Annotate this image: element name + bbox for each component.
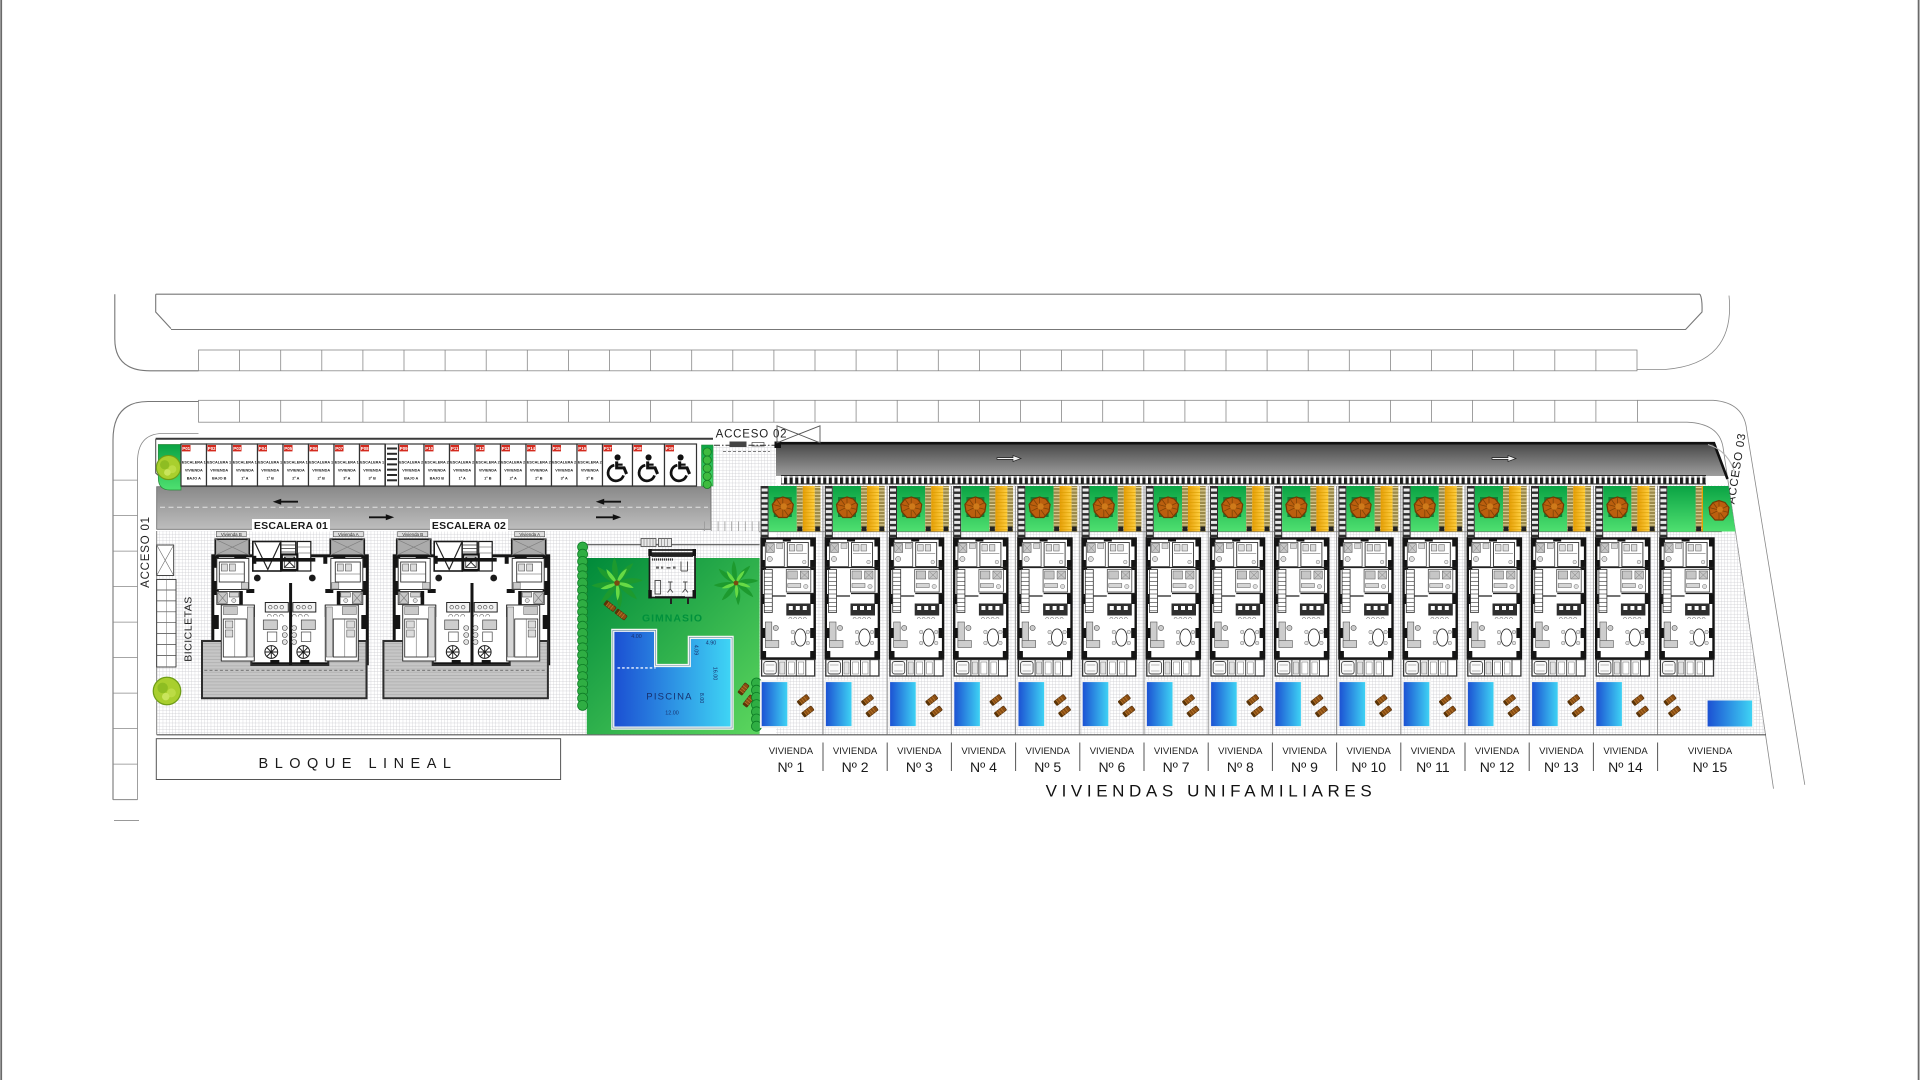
- svg-text:VIVIENDA: VIVIENDA: [363, 469, 381, 473]
- svg-text:P04: P04: [259, 446, 267, 451]
- svg-text:3º B: 3º B: [369, 477, 377, 481]
- svg-text:BAJO B: BAJO B: [430, 477, 445, 481]
- svg-text:Nº 2: Nº 2: [842, 759, 869, 775]
- svg-text:VIVIENDA: VIVIENDA: [1603, 746, 1648, 757]
- svg-text:ESCALERA 2: ESCALERA 2: [399, 461, 423, 465]
- svg-text:VIVIENDA: VIVIENDA: [504, 469, 522, 473]
- svg-text:ESCALERA 1: ESCALERA 1: [309, 461, 333, 465]
- svg-text:VIVIENDA: VIVIENDA: [479, 469, 497, 473]
- svg-text:Nº 1: Nº 1: [777, 759, 804, 775]
- svg-text:P09: P09: [400, 446, 408, 451]
- svg-text:ESCALERA 1: ESCALERA 1: [360, 461, 384, 465]
- svg-text:ESCALERA 2: ESCALERA 2: [476, 461, 500, 465]
- svg-text:Nº 9: Nº 9: [1291, 759, 1318, 775]
- svg-text:ESCALERA 1: ESCALERA 1: [182, 461, 206, 465]
- svg-text:Nº 13: Nº 13: [1544, 759, 1579, 775]
- svg-text:VIVIENDA: VIVIENDA: [1282, 746, 1327, 757]
- svg-text:P02: P02: [208, 446, 216, 451]
- svg-text:P07: P07: [335, 446, 343, 451]
- svg-text:1º B: 1º B: [267, 477, 275, 481]
- svg-text:VIVIENDA: VIVIENDA: [1688, 746, 1733, 757]
- svg-text:4.90: 4.90: [706, 640, 717, 646]
- svg-text:P19: P19: [666, 446, 674, 451]
- svg-text:12.00: 12.00: [665, 711, 679, 717]
- svg-text:VIVIENDA: VIVIENDA: [833, 746, 878, 757]
- svg-text:ESCALERA 2: ESCALERA 2: [578, 461, 602, 465]
- svg-text:BAJO A: BAJO A: [404, 477, 418, 481]
- svg-text:BICICLETAS: BICICLETAS: [183, 596, 195, 662]
- svg-text:P15: P15: [553, 446, 561, 451]
- svg-text:ESCALERA 2: ESCALERA 2: [527, 461, 551, 465]
- svg-text:VIVIENDA: VIVIENDA: [428, 469, 446, 473]
- svg-text:ESCALERA 1: ESCALERA 1: [258, 461, 282, 465]
- svg-text:VIVIENDA: VIVIENDA: [185, 469, 203, 473]
- svg-text:VIVIENDA: VIVIENDA: [1026, 746, 1071, 757]
- svg-text:Nº 5: Nº 5: [1034, 759, 1061, 775]
- svg-text:2º B: 2º B: [318, 477, 326, 481]
- svg-text:VIVIENDAS UNIFAMILIARES: VIVIENDAS UNIFAMILIARES: [1046, 782, 1377, 801]
- svg-text:VIVIENDA: VIVIENDA: [897, 746, 942, 757]
- svg-text:Nº 12: Nº 12: [1480, 759, 1515, 775]
- svg-text:P05: P05: [284, 446, 292, 451]
- svg-text:P12: P12: [476, 446, 484, 451]
- svg-text:Nº 15: Nº 15: [1693, 759, 1728, 775]
- svg-text:2º B: 2º B: [535, 477, 543, 481]
- svg-text:ESCALERA 1: ESCALERA 1: [284, 461, 308, 465]
- svg-text:ESCALERA 1: ESCALERA 1: [335, 461, 359, 465]
- svg-text:1º A: 1º A: [241, 477, 248, 481]
- svg-text:P03: P03: [233, 446, 241, 451]
- svg-text:VIVIENDA: VIVIENDA: [210, 469, 228, 473]
- svg-text:P11: P11: [451, 446, 459, 451]
- svg-text:VIVIENDA: VIVIENDA: [236, 469, 254, 473]
- svg-text:Nº 3: Nº 3: [906, 759, 933, 775]
- svg-text:VIVIENDA: VIVIENDA: [1539, 746, 1584, 757]
- svg-text:Nº 14: Nº 14: [1608, 759, 1643, 775]
- svg-text:BLOQUE LINEAL: BLOQUE LINEAL: [259, 756, 458, 772]
- svg-text:VIVIENDA: VIVIENDA: [1475, 746, 1520, 757]
- svg-text:VIVIENDA: VIVIENDA: [769, 746, 814, 757]
- svg-text:ESCALERA 1: ESCALERA 1: [233, 461, 257, 465]
- svg-text:Nº 8: Nº 8: [1227, 759, 1254, 775]
- svg-text:ESCALERA 2: ESCALERA 2: [552, 461, 576, 465]
- svg-text:P14: P14: [527, 446, 535, 451]
- svg-text:Nº 6: Nº 6: [1098, 759, 1125, 775]
- svg-text:P18: P18: [634, 446, 642, 451]
- svg-text:1º B: 1º B: [484, 477, 492, 481]
- svg-text:P10: P10: [425, 446, 433, 451]
- svg-text:VIVIENDA: VIVIENDA: [261, 469, 279, 473]
- svg-text:VIVIENDA: VIVIENDA: [1347, 746, 1392, 757]
- svg-text:VIVIENDA: VIVIENDA: [338, 469, 356, 473]
- svg-text:P17: P17: [604, 446, 612, 451]
- svg-text:P13: P13: [502, 446, 510, 451]
- svg-text:4.09: 4.09: [693, 645, 699, 656]
- svg-text:ESCALERA 2: ESCALERA 2: [425, 461, 449, 465]
- svg-text:VIVIENDA: VIVIENDA: [453, 469, 471, 473]
- svg-text:VIVIENDA: VIVIENDA: [1090, 746, 1135, 757]
- svg-text:16.00: 16.00: [712, 667, 718, 681]
- svg-text:VIVIENDA: VIVIENDA: [312, 469, 330, 473]
- svg-text:4.00: 4.00: [631, 634, 642, 640]
- svg-text:Nº 11: Nº 11: [1416, 759, 1450, 775]
- svg-text:BAJO B: BAJO B: [212, 477, 227, 481]
- svg-text:VIVIENDA: VIVIENDA: [1411, 746, 1456, 757]
- svg-text:ESCALERA 01: ESCALERA 01: [254, 520, 328, 532]
- svg-text:ESCALERA 02: ESCALERA 02: [432, 520, 506, 532]
- svg-text:P01: P01: [182, 446, 190, 451]
- svg-text:3º A: 3º A: [561, 477, 568, 481]
- svg-text:P08: P08: [361, 446, 369, 451]
- svg-text:VIVIENDA: VIVIENDA: [1154, 746, 1199, 757]
- svg-text:VIVIENDA: VIVIENDA: [581, 469, 599, 473]
- svg-text:VIVIENDA: VIVIENDA: [530, 469, 548, 473]
- svg-text:VIVIENDA: VIVIENDA: [961, 746, 1006, 757]
- svg-text:VIVIENDA: VIVIENDA: [287, 469, 305, 473]
- svg-text:PISCINA: PISCINA: [646, 692, 692, 703]
- svg-text:ESCALERA 2: ESCALERA 2: [501, 461, 525, 465]
- svg-text:VIVIENDA: VIVIENDA: [402, 469, 420, 473]
- svg-text:VIVIENDA: VIVIENDA: [555, 469, 573, 473]
- svg-text:VIVIENDA: VIVIENDA: [1218, 746, 1263, 757]
- svg-text:2º A: 2º A: [292, 477, 299, 481]
- svg-text:ESCALERA 2: ESCALERA 2: [450, 461, 474, 465]
- svg-text:BAJO A: BAJO A: [187, 477, 201, 481]
- svg-text:GIMNASIO: GIMNASIO: [642, 613, 703, 625]
- svg-text:ESCALERA 1: ESCALERA 1: [207, 461, 231, 465]
- svg-text:Nº 7: Nº 7: [1163, 759, 1190, 775]
- svg-text:3º B: 3º B: [586, 477, 594, 481]
- svg-text:ACCESO 01: ACCESO 01: [140, 516, 152, 588]
- svg-text:Nº 10: Nº 10: [1351, 759, 1386, 775]
- svg-text:P06: P06: [310, 446, 318, 451]
- svg-text:3º A: 3º A: [343, 477, 350, 481]
- svg-text:P16: P16: [578, 446, 586, 451]
- svg-text:2º A: 2º A: [510, 477, 517, 481]
- svg-text:8.00: 8.00: [698, 693, 704, 704]
- svg-text:Nº 4: Nº 4: [970, 759, 997, 775]
- svg-text:1º A: 1º A: [459, 477, 466, 481]
